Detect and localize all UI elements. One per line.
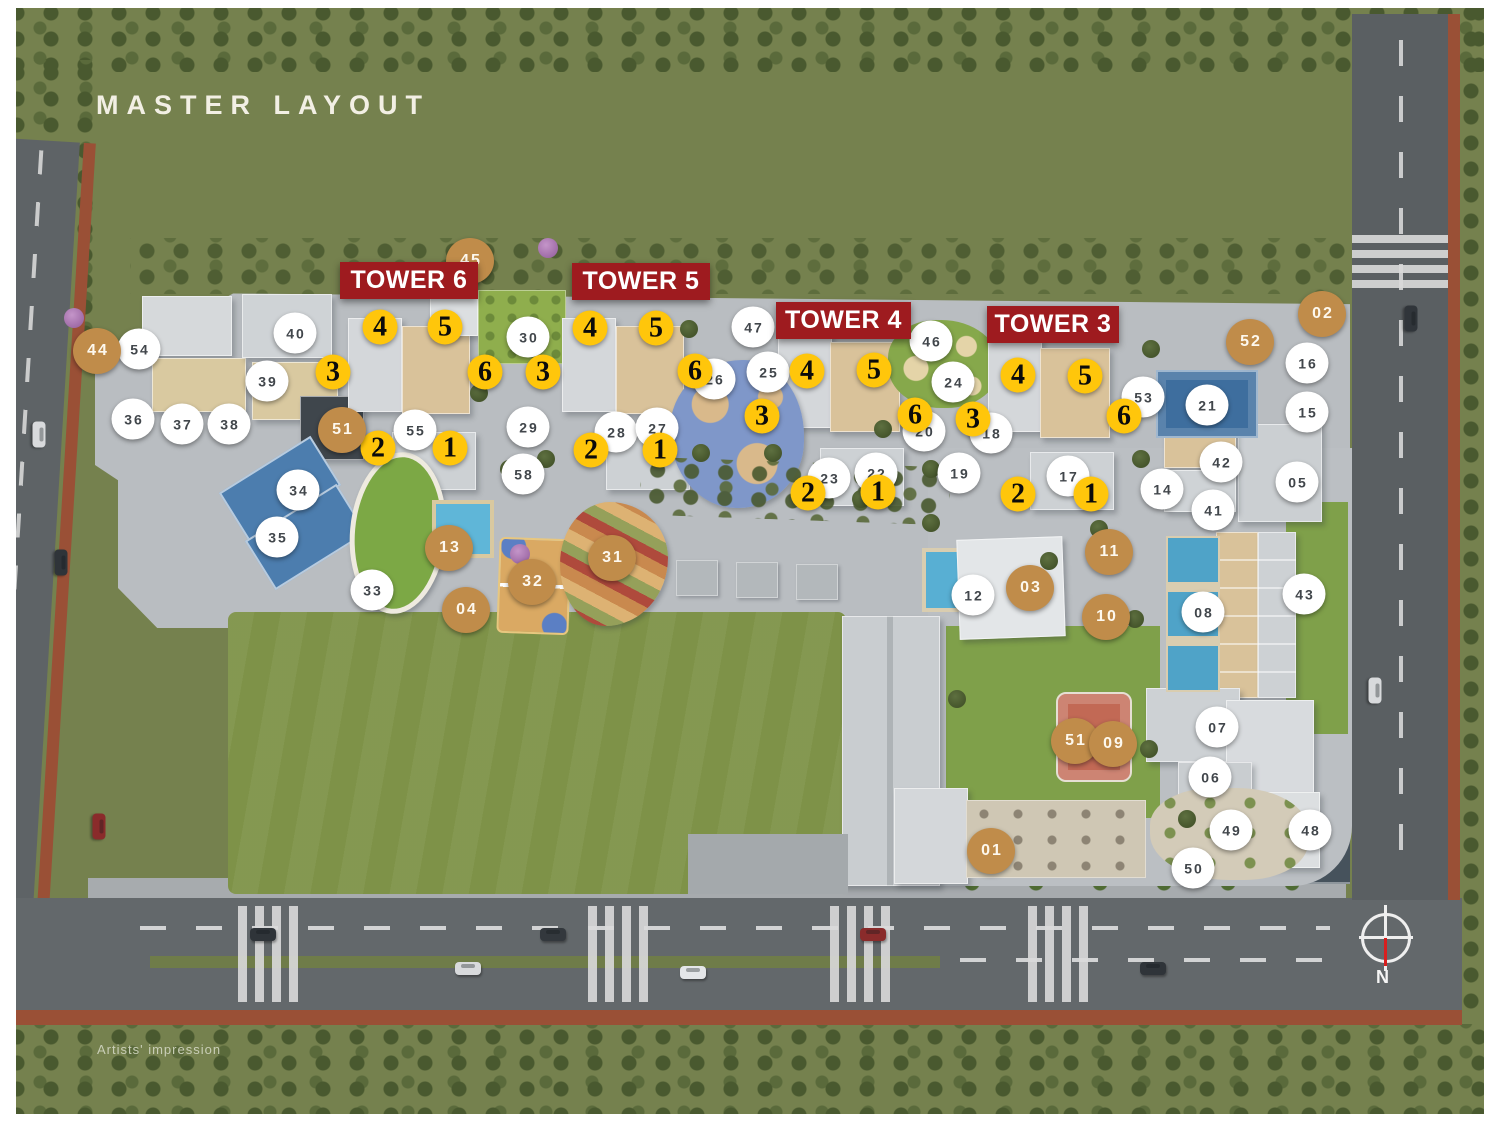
amenity-marker-38-5: 38 (208, 404, 251, 445)
unit-marker-tower3-4: 4 (1001, 358, 1036, 393)
amenity-marker-06-38: 06 (1189, 757, 1232, 798)
amenity-marker-07-37: 07 (1196, 707, 1239, 748)
unit-marker-tower4-5: 5 (857, 353, 892, 388)
crosswalk (588, 906, 652, 1002)
shed (796, 564, 838, 600)
unit-marker-tower3-5: 5 (1068, 359, 1103, 394)
amenity-marker-orange-51-68: 51 (318, 407, 366, 453)
tower-banner-tower-6: TOWER 6 (340, 262, 478, 299)
amenity-marker-34-6: 34 (277, 470, 320, 511)
amenity-marker-orange-52-74: 52 (1226, 319, 1274, 365)
tree-band-campus-top (130, 238, 1350, 294)
amenity-marker-24-19: 24 (932, 362, 975, 403)
compass-needle-red (1384, 938, 1387, 966)
amenity-marker-39-2: 39 (246, 361, 289, 402)
shed (676, 560, 718, 596)
tree (1040, 552, 1058, 570)
unit-marker-tower6-6: 6 (468, 355, 503, 390)
compass-north-label: N (1376, 967, 1389, 988)
crosswalk (1352, 230, 1450, 288)
unit-marker-tower5-6: 6 (678, 354, 713, 389)
tower-banner-tower-5: TOWER 5 (572, 263, 710, 300)
amenity-marker-orange-09-79: 09 (1089, 721, 1137, 767)
car (680, 966, 706, 979)
image-frame (0, 0, 1500, 8)
image-frame (0, 0, 16, 1122)
amenity-marker-orange-44-66: 44 (73, 328, 121, 374)
tree-band-top (0, 0, 1500, 72)
unit-marker-tower4-4: 4 (790, 354, 825, 389)
car (455, 962, 481, 975)
amenity-marker-orange-01-80: 01 (967, 828, 1015, 874)
unit-marker-tower3-2: 2 (1001, 477, 1036, 512)
tower-banner-tower-3: TOWER 3 (987, 306, 1119, 343)
car (1369, 678, 1382, 704)
unit-marker-tower4-3: 3 (745, 399, 780, 434)
amenity-marker-33-8: 33 (351, 570, 394, 611)
unit-marker-tower6-5: 5 (428, 310, 463, 345)
road-bottom (10, 898, 1462, 1010)
tree (922, 514, 940, 532)
amenity-marker-orange-10-77: 10 (1082, 594, 1130, 640)
tree (764, 444, 782, 462)
tree (1140, 740, 1158, 758)
amenity-marker-30-10: 30 (507, 317, 550, 358)
flowering-tree (538, 238, 558, 258)
amenity-marker-16-28: 16 (1286, 343, 1329, 384)
amenity-marker-37-4: 37 (161, 404, 204, 445)
car (860, 928, 886, 941)
amenity-marker-14-31: 14 (1141, 469, 1184, 510)
unit-marker-tower4-1: 1 (861, 475, 896, 510)
road-lane-dashes (140, 926, 1330, 930)
tree (692, 444, 710, 462)
car (1405, 306, 1418, 332)
amenity-marker-05-33: 05 (1276, 462, 1319, 503)
tree (948, 690, 966, 708)
amenity-marker-58-12: 58 (502, 454, 545, 495)
tree (1178, 810, 1196, 828)
amenity-marker-orange-04-72: 04 (442, 587, 490, 633)
unit-marker-tower6-2: 2 (361, 431, 396, 466)
tree (874, 420, 892, 438)
tree (680, 320, 698, 338)
amenity-marker-08-35: 08 (1182, 592, 1225, 633)
road-edging (10, 1010, 1462, 1025)
image-frame (0, 1114, 1500, 1122)
unit-marker-tower6-3: 3 (316, 355, 351, 390)
amenity-marker-21-27: 21 (1186, 385, 1229, 426)
amenity-marker-12-36: 12 (952, 575, 995, 616)
image-frame (1484, 0, 1500, 1122)
unit-marker-tower5-5: 5 (639, 311, 674, 346)
amenity-marker-43-34: 43 (1283, 574, 1326, 615)
amenity-marker-48-40: 48 (1289, 810, 1332, 851)
amenity-marker-42-30: 42 (1200, 442, 1243, 483)
car (33, 422, 46, 448)
amenity-marker-54-0: 54 (118, 329, 161, 370)
amenity-marker-19-24: 19 (938, 453, 981, 494)
unit-marker-tower6-4: 4 (363, 310, 398, 345)
crosswalk (830, 906, 894, 1002)
unit-marker-tower3-1: 1 (1074, 477, 1109, 512)
page-title: MASTER LAYOUT (96, 90, 430, 121)
amenity-marker-orange-13-69: 13 (425, 525, 473, 571)
amenity-marker-orange-31-70: 31 (588, 535, 636, 581)
crosswalk (1028, 906, 1092, 1002)
amenity-marker-orange-11-76: 11 (1085, 529, 1133, 575)
amenity-marker-41-32: 41 (1192, 490, 1235, 531)
amenity-marker-46-18: 46 (910, 321, 953, 362)
amenity-marker-orange-32-71: 32 (508, 559, 556, 605)
amenity-marker-49-39: 49 (1210, 810, 1253, 851)
unit-marker-tower5-4: 4 (573, 311, 608, 346)
unit-marker-tower4-6: 6 (898, 398, 933, 433)
tree-band-bottom (0, 1024, 1500, 1122)
unit-marker-tower5-3: 3 (526, 355, 561, 390)
car (93, 814, 106, 840)
tree (1142, 340, 1160, 358)
car (250, 928, 276, 941)
amenity-marker-orange-03-75: 03 (1006, 565, 1054, 611)
unit-marker-tower5-2: 2 (574, 433, 609, 468)
building-block (894, 788, 968, 884)
car (55, 550, 68, 576)
flowering-tree (64, 308, 84, 328)
amenity-marker-25-16: 25 (747, 352, 790, 393)
amenity-marker-47-17: 47 (732, 307, 775, 348)
townhouse-row (1258, 532, 1296, 698)
road-lane-dashes (1399, 40, 1403, 860)
compass: N (1361, 913, 1411, 963)
tree (1132, 450, 1150, 468)
artists-impression-note: Artists' impression (97, 1042, 221, 1057)
amenity-marker-29-11: 29 (507, 407, 550, 448)
unit-marker-tower6-1: 1 (433, 431, 468, 466)
amenity-marker-55-9: 55 (394, 410, 437, 451)
amenity-marker-orange-02-73: 02 (1298, 291, 1346, 337)
crosswalk (238, 906, 302, 1002)
shed (736, 562, 778, 598)
unit-marker-tower3-6: 6 (1107, 399, 1142, 434)
entry-plaza (688, 834, 848, 894)
amenity-marker-50-41: 50 (1172, 848, 1215, 889)
car (1140, 962, 1166, 975)
amenity-marker-36-3: 36 (112, 399, 155, 440)
amenity-marker-35-7: 35 (256, 517, 299, 558)
unit-marker-tower4-2: 2 (791, 476, 826, 511)
tower-banner-tower-4: TOWER 4 (776, 302, 911, 339)
unit-marker-tower3-3: 3 (956, 402, 991, 437)
road-edging (1448, 14, 1460, 900)
unit-marker-tower5-1: 1 (643, 433, 678, 468)
amenity-marker-15-29: 15 (1286, 392, 1329, 433)
amenity-marker-40-1: 40 (274, 313, 317, 354)
master-layout-plan: MASTER LAYOUT TOWER 6TOWER 5TOWER 4TOWER… (0, 0, 1500, 1122)
car (540, 928, 566, 941)
